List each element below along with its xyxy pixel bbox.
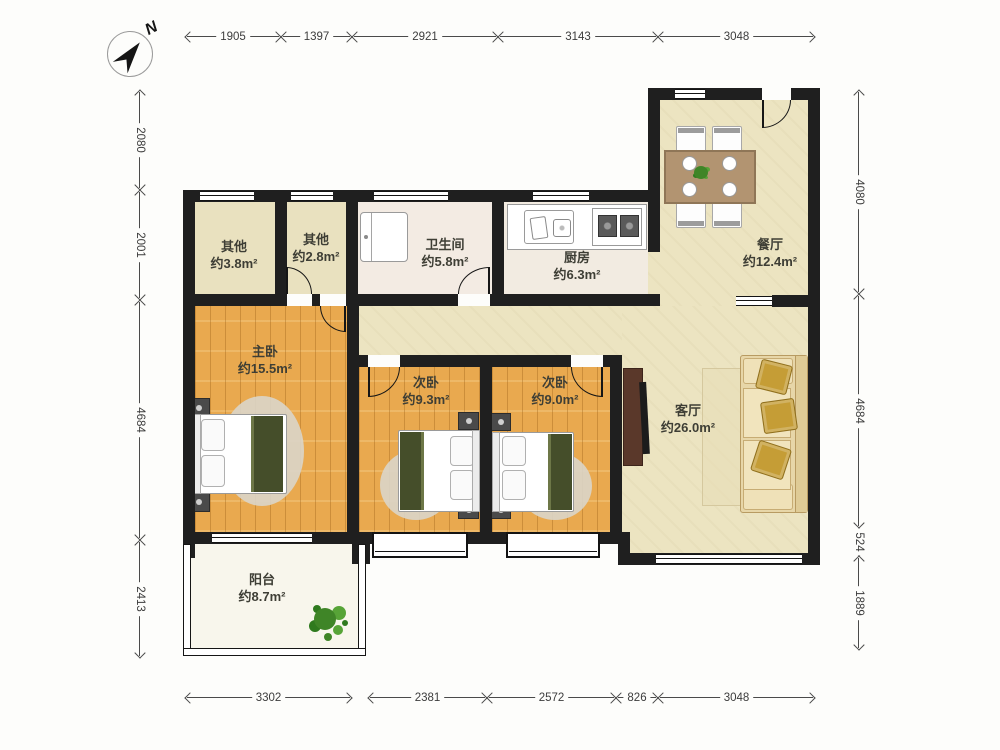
room-area: 约2.8m² xyxy=(293,249,340,266)
room-area: 约6.3m² xyxy=(554,267,601,284)
room-area: 约12.4m² xyxy=(743,254,797,271)
sink-icon xyxy=(524,210,574,244)
wall xyxy=(808,88,820,565)
pillow-icon xyxy=(502,436,526,466)
balcony-glazing xyxy=(183,648,366,656)
basin-icon xyxy=(553,219,571,237)
balcony-plant-icon xyxy=(314,608,336,630)
room-area: 约3.8m² xyxy=(211,256,258,273)
plate-icon xyxy=(722,156,737,171)
wall xyxy=(648,202,660,252)
room-name: 卫生间 xyxy=(422,237,469,254)
balcony-glazing xyxy=(358,544,366,654)
window xyxy=(736,296,772,306)
room-label-kitchen: 厨房 约6.3m² xyxy=(554,250,601,284)
room-area: 约26.0m² xyxy=(661,420,715,437)
washer-knob-icon xyxy=(364,235,368,239)
dimension-left-3: 4684 xyxy=(133,300,147,540)
dimension-top-3: 2921 xyxy=(352,30,498,44)
dimension-top-1: 1905 xyxy=(185,30,281,44)
pillow-icon xyxy=(201,455,225,487)
wall xyxy=(610,355,622,532)
balcony-glazing xyxy=(183,544,191,654)
dimension-right-2: 4684 xyxy=(852,294,866,528)
stove-icon xyxy=(592,208,642,246)
room-label-bedroom3: 次卧 约9.0m² xyxy=(532,375,579,409)
washer-panel-icon xyxy=(371,213,372,261)
room-area: 约9.0m² xyxy=(532,392,579,409)
chair-icon xyxy=(712,202,742,228)
wall xyxy=(618,532,630,565)
wall xyxy=(772,295,808,307)
room-name: 客厅 xyxy=(661,403,715,420)
window xyxy=(200,191,254,201)
room-area: 约5.8m² xyxy=(422,254,469,271)
floor-hallway xyxy=(359,306,622,355)
room-label-other1: 其他 约3.8m² xyxy=(211,239,258,273)
nightstand-icon xyxy=(490,413,511,431)
wall xyxy=(359,355,368,367)
wall xyxy=(490,294,660,306)
room-name: 厨房 xyxy=(554,250,601,267)
wall xyxy=(183,294,286,306)
wall xyxy=(492,190,504,306)
dining-table-icon xyxy=(664,150,756,204)
room-name: 阳台 xyxy=(239,572,286,589)
chair-icon xyxy=(712,126,742,152)
room-label-other2: 其他 约2.8m² xyxy=(293,232,340,266)
burner-icon xyxy=(620,215,639,237)
bed-blanket-icon xyxy=(548,434,572,510)
dimension-bottom-2: 2381 xyxy=(368,691,487,705)
living-rug-icon xyxy=(702,368,742,506)
room-label-bathroom: 卫生间 约5.8m² xyxy=(422,237,469,271)
wall xyxy=(648,88,660,202)
wall xyxy=(480,355,492,532)
room-label-balcony: 阳台 约8.7m² xyxy=(239,572,286,606)
pillow-icon xyxy=(201,419,225,451)
window xyxy=(533,191,589,201)
pillow-icon xyxy=(760,398,798,434)
chair-icon xyxy=(676,126,706,152)
dimension-top-4: 3143 xyxy=(498,30,658,44)
room-name: 其他 xyxy=(293,232,340,249)
dimension-right-1: 4080 xyxy=(852,90,866,294)
floor-plan: N xyxy=(0,0,1000,750)
window xyxy=(656,554,802,564)
dimension-left-4: 2413 xyxy=(133,540,147,658)
dimension-right-4: 1889 xyxy=(852,556,866,650)
dimension-left-1: 2080 xyxy=(133,90,147,190)
pillow-icon xyxy=(502,470,526,500)
sofa-back-icon xyxy=(795,356,807,512)
plate-icon xyxy=(722,182,737,197)
room-name: 其他 xyxy=(211,239,258,256)
bed-blanket-icon xyxy=(251,416,283,492)
room-label-living: 客厅 约26.0m² xyxy=(661,403,715,437)
floor-kitchen-passage xyxy=(648,252,660,294)
room-name: 次卧 xyxy=(532,375,579,392)
dimension-bottom-5: 3048 xyxy=(658,691,815,705)
table-plant-icon xyxy=(694,166,708,179)
headboard-icon xyxy=(492,432,500,512)
dimension-top-2: 1397 xyxy=(281,30,352,44)
chair-icon xyxy=(676,202,706,228)
bed-blanket-icon xyxy=(400,432,424,510)
nightstand-icon xyxy=(458,412,479,430)
dimension-top-5: 3048 xyxy=(658,30,815,44)
window xyxy=(374,191,448,201)
wall xyxy=(347,306,359,532)
room-label-bedroom2: 次卧 约9.3m² xyxy=(403,375,450,409)
headboard-icon xyxy=(472,430,480,512)
pillow-icon xyxy=(450,470,474,500)
dimension-left-2: 2001 xyxy=(133,190,147,300)
room-label-dining: 餐厅 约12.4m² xyxy=(743,237,797,271)
dimension-bottom-4: 826 xyxy=(616,691,658,705)
dimension-bottom-1: 3302 xyxy=(185,691,352,705)
bay-window xyxy=(506,532,600,558)
wall xyxy=(648,88,762,100)
plate-icon xyxy=(682,182,697,197)
wall xyxy=(346,294,458,306)
dimension-right-3: 524 xyxy=(852,528,866,556)
burner-icon xyxy=(598,215,617,237)
window xyxy=(675,89,705,99)
room-area: 约15.5m² xyxy=(238,361,292,378)
pillow-icon xyxy=(450,436,474,466)
room-label-master: 主卧 约15.5m² xyxy=(238,344,292,378)
bay-window xyxy=(372,532,468,558)
window xyxy=(291,191,333,201)
balcony-door-window xyxy=(212,533,312,543)
wall xyxy=(312,294,320,306)
washing-machine-icon xyxy=(360,212,408,262)
wall xyxy=(183,190,195,544)
room-name: 主卧 xyxy=(238,344,292,361)
room-area: 约9.3m² xyxy=(403,392,450,409)
compass: N xyxy=(104,20,168,84)
wall xyxy=(346,190,358,306)
dimension-bottom-3: 2572 xyxy=(487,691,616,705)
room-area: 约8.7m² xyxy=(239,589,286,606)
room-name: 餐厅 xyxy=(743,237,797,254)
faucet-icon xyxy=(530,216,549,240)
room-name: 次卧 xyxy=(403,375,450,392)
